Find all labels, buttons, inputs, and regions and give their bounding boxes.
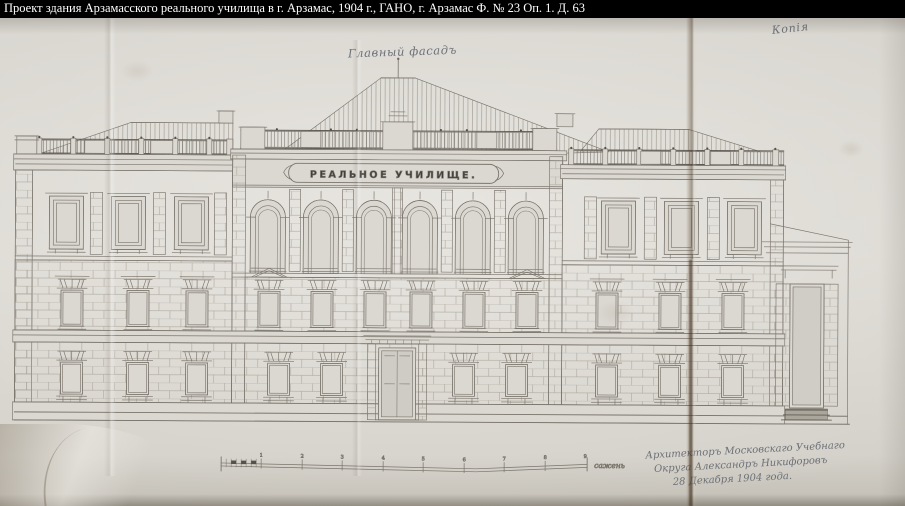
scale-unit-label: сажень — [594, 461, 625, 470]
scale-tick-label: 6 — [463, 457, 466, 463]
scale-tick-label: 1 — [260, 453, 263, 459]
scale-tick-label: 3 — [341, 454, 344, 460]
scale-tick-label: 9 — [584, 454, 587, 460]
scale-bar: 1 2 3 4 5 6 7 8 9 сажень — [221, 452, 625, 474]
scale-tick-label: 8 — [544, 455, 547, 461]
caption-bar: Проект здания Арзамасского реального учи… — [0, 0, 905, 18]
main-entrance-door — [363, 336, 430, 420]
scale-tick-label: 5 — [422, 456, 425, 462]
facade-title-handwriting: Главный фасадъ — [347, 43, 457, 61]
left-wing — [12, 136, 234, 421]
scale-tick-label: 4 — [382, 455, 385, 461]
building-sign: РЕАЛЬНОЕ УЧИЛИЩЕ. — [310, 169, 478, 181]
archive-caption: Проект здания Арзамасского реального учи… — [4, 1, 585, 15]
archival-photo: РЕАЛЬНОЕ УЧИЛИЩЕ. — [0, 0, 905, 506]
scale-tick-label: 7 — [503, 456, 506, 462]
signature-block: Архитекторъ Московскаго Учебнаго Округа … — [644, 440, 847, 489]
signature-line-3: 28 Декабря 1904 года. — [672, 471, 793, 488]
right-wing — [559, 147, 785, 424]
scale-tick-label: 2 — [301, 454, 304, 460]
copy-note-handwriting: Копія — [770, 20, 809, 37]
elevation-drawing: РЕАЛЬНОЕ УЧИЛИЩЕ. — [0, 0, 905, 506]
